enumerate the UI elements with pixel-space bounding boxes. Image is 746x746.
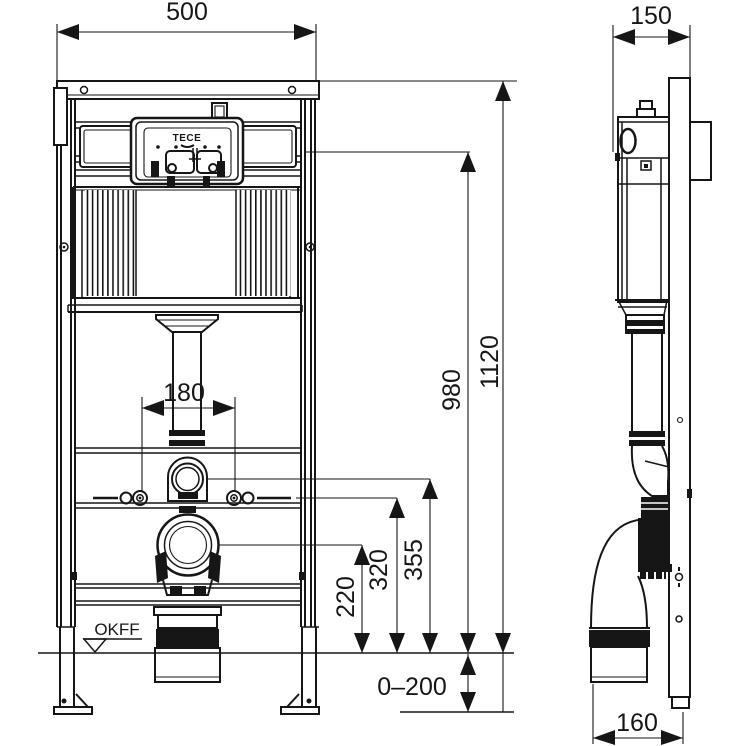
wall-bracket [690, 122, 711, 180]
drain-pipe-front [154, 607, 221, 682]
dim-220-label: 220 [332, 576, 360, 618]
dimension-width-500: 500 [57, 0, 316, 80]
dim-160-label: 160 [616, 709, 658, 737]
wall-rail [669, 78, 690, 697]
foot-side [672, 697, 689, 708]
tece-logo: TECE [173, 133, 202, 144]
middle-crossbar [75, 448, 430, 508]
drain-connection [155, 506, 362, 595]
drain-elbow-inner [638, 576, 647, 628]
dim-150-label: 150 [630, 2, 672, 30]
front-view: 500 [38, 0, 517, 714]
dim-180-label: 180 [163, 379, 205, 407]
dim-0-200-label: 0–200 [377, 673, 447, 701]
access-panel: TECE [131, 103, 243, 188]
dim-980-label: 980 [438, 369, 466, 411]
cistern-ribs-left [85, 190, 136, 296]
flush-pipe-side [626, 315, 669, 518]
dim-355-label: 355 [400, 539, 428, 581]
technical-drawing-page: 500 [0, 0, 746, 746]
cistern-side [615, 101, 670, 315]
okff-label: OKFF [94, 620, 139, 639]
cistern-body [68, 187, 302, 312]
side-mount-plate [54, 88, 67, 145]
top-rail [57, 81, 319, 99]
dim-500-label: 500 [166, 0, 208, 26]
wc-bend-side [589, 518, 668, 682]
fill-valve-cap [640, 101, 652, 109]
cistern-ribs-right [237, 190, 291, 296]
vertical-dimensions: 220 320 355 980 1120 [306, 81, 517, 712]
wc-frame-installation-drawing: 500 [0, 0, 746, 746]
foot-plate-right [281, 707, 319, 714]
side-view: 150 [589, 2, 711, 745]
floor-level-marker: OKFF [83, 620, 142, 652]
dim-320-label: 320 [365, 549, 393, 591]
dim-1120-label: 1120 [476, 335, 504, 389]
foot-plate-left [54, 707, 92, 714]
drain-elbow-outer [591, 520, 638, 628]
